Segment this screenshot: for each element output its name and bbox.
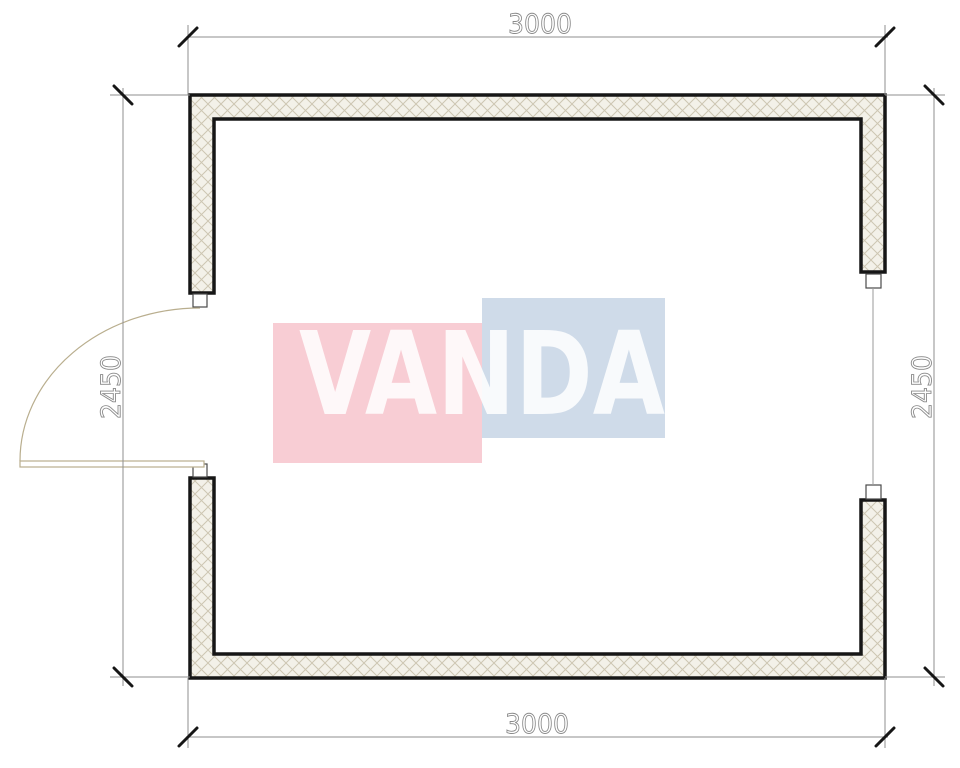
floor-plan-canvas: VANDA: [0, 0, 960, 768]
dimension-label-top: 3000: [508, 9, 572, 40]
window-jamb-bottom: [866, 485, 881, 499]
wall-lower-section: [190, 478, 885, 678]
watermark-text: VANDA: [299, 308, 665, 442]
floor-plan-svg: VANDA: [0, 0, 960, 768]
watermark: VANDA: [273, 298, 665, 463]
dimension-label-bottom: 3000: [505, 709, 569, 740]
window-jamb-top: [866, 274, 881, 288]
dimension-label-right: 2450: [907, 355, 938, 419]
wall-upper-section: [190, 95, 885, 293]
dimension-label-left: 2450: [96, 355, 127, 419]
door-leaf: [20, 461, 204, 467]
door-jamb-top: [193, 294, 207, 307]
